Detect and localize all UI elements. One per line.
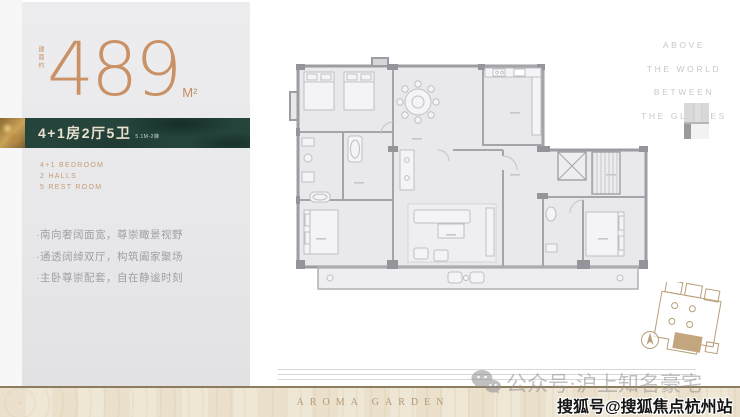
- left-margin-strip: [0, 0, 22, 387]
- spec-banner: 4+1房2厅5卫 5.1M-2梯: [0, 118, 250, 148]
- spec-line: 5 REST ROOM: [40, 182, 104, 193]
- selling-points: ·南向奢阔面宽，尊崇瞰景视野 ·通透阔绰双厅，构筑阖家聚场 ·主卧尊崇配套，自在…: [36, 225, 183, 290]
- slogan-line: BETWEEN: [638, 81, 730, 105]
- bed: [304, 72, 334, 110]
- selling-point: ·通透阔绰双厅，构筑阖家聚场: [36, 247, 183, 269]
- sohu-watermark: 搜狐号@搜狐焦点杭州站: [557, 393, 733, 417]
- slogan-line: ABOVE: [638, 34, 730, 58]
- photo-detail: [684, 122, 709, 139]
- bed: [344, 72, 374, 110]
- spec-line: 4+1 BEDROOM: [40, 160, 104, 171]
- area-prefix-label: 建面约: [36, 46, 45, 70]
- spec-banner-title: 4+1房2厅5卫: [38, 123, 131, 143]
- walkin-closet: [592, 152, 620, 194]
- highlighted-unit: [672, 332, 702, 353]
- kitchen-island: [400, 150, 414, 190]
- spec-banner-subtitle: 5.1M-2梯: [135, 133, 159, 140]
- dining-table: [397, 81, 439, 123]
- gold-artwork-thumb: [0, 118, 25, 148]
- bathtub: [310, 192, 330, 202]
- flyer-page: 建面约 489 M² 4+1房2厅5卫 5.1M-2梯 4+1 BEDROOM …: [0, 0, 740, 417]
- area-value: 489: [47, 34, 179, 106]
- bed: [304, 210, 338, 254]
- floor-plan: [288, 52, 650, 352]
- spec-line: 2 HALLS: [40, 171, 104, 182]
- slogan-line: THE WORLD: [638, 58, 730, 82]
- bed: [586, 212, 624, 256]
- selling-point: ·主卧尊崇配套，自在静谧时刻: [36, 268, 183, 290]
- living-room: [408, 204, 496, 262]
- site-key-plan: [632, 282, 737, 367]
- architecture-photo: [684, 103, 709, 139]
- area-headline: 建面约 489 M²: [36, 34, 197, 106]
- wechat-icon: [470, 368, 502, 396]
- spec-lines-en: 4+1 BEDROOM 2 HALLS 5 REST ROOM: [40, 160, 104, 193]
- selling-point: ·南向奢阔面宽，尊崇瞰景视野: [36, 225, 183, 247]
- area-unit: M²: [182, 85, 197, 100]
- compass-icon: [642, 332, 659, 349]
- elevator-shaft: [558, 152, 586, 180]
